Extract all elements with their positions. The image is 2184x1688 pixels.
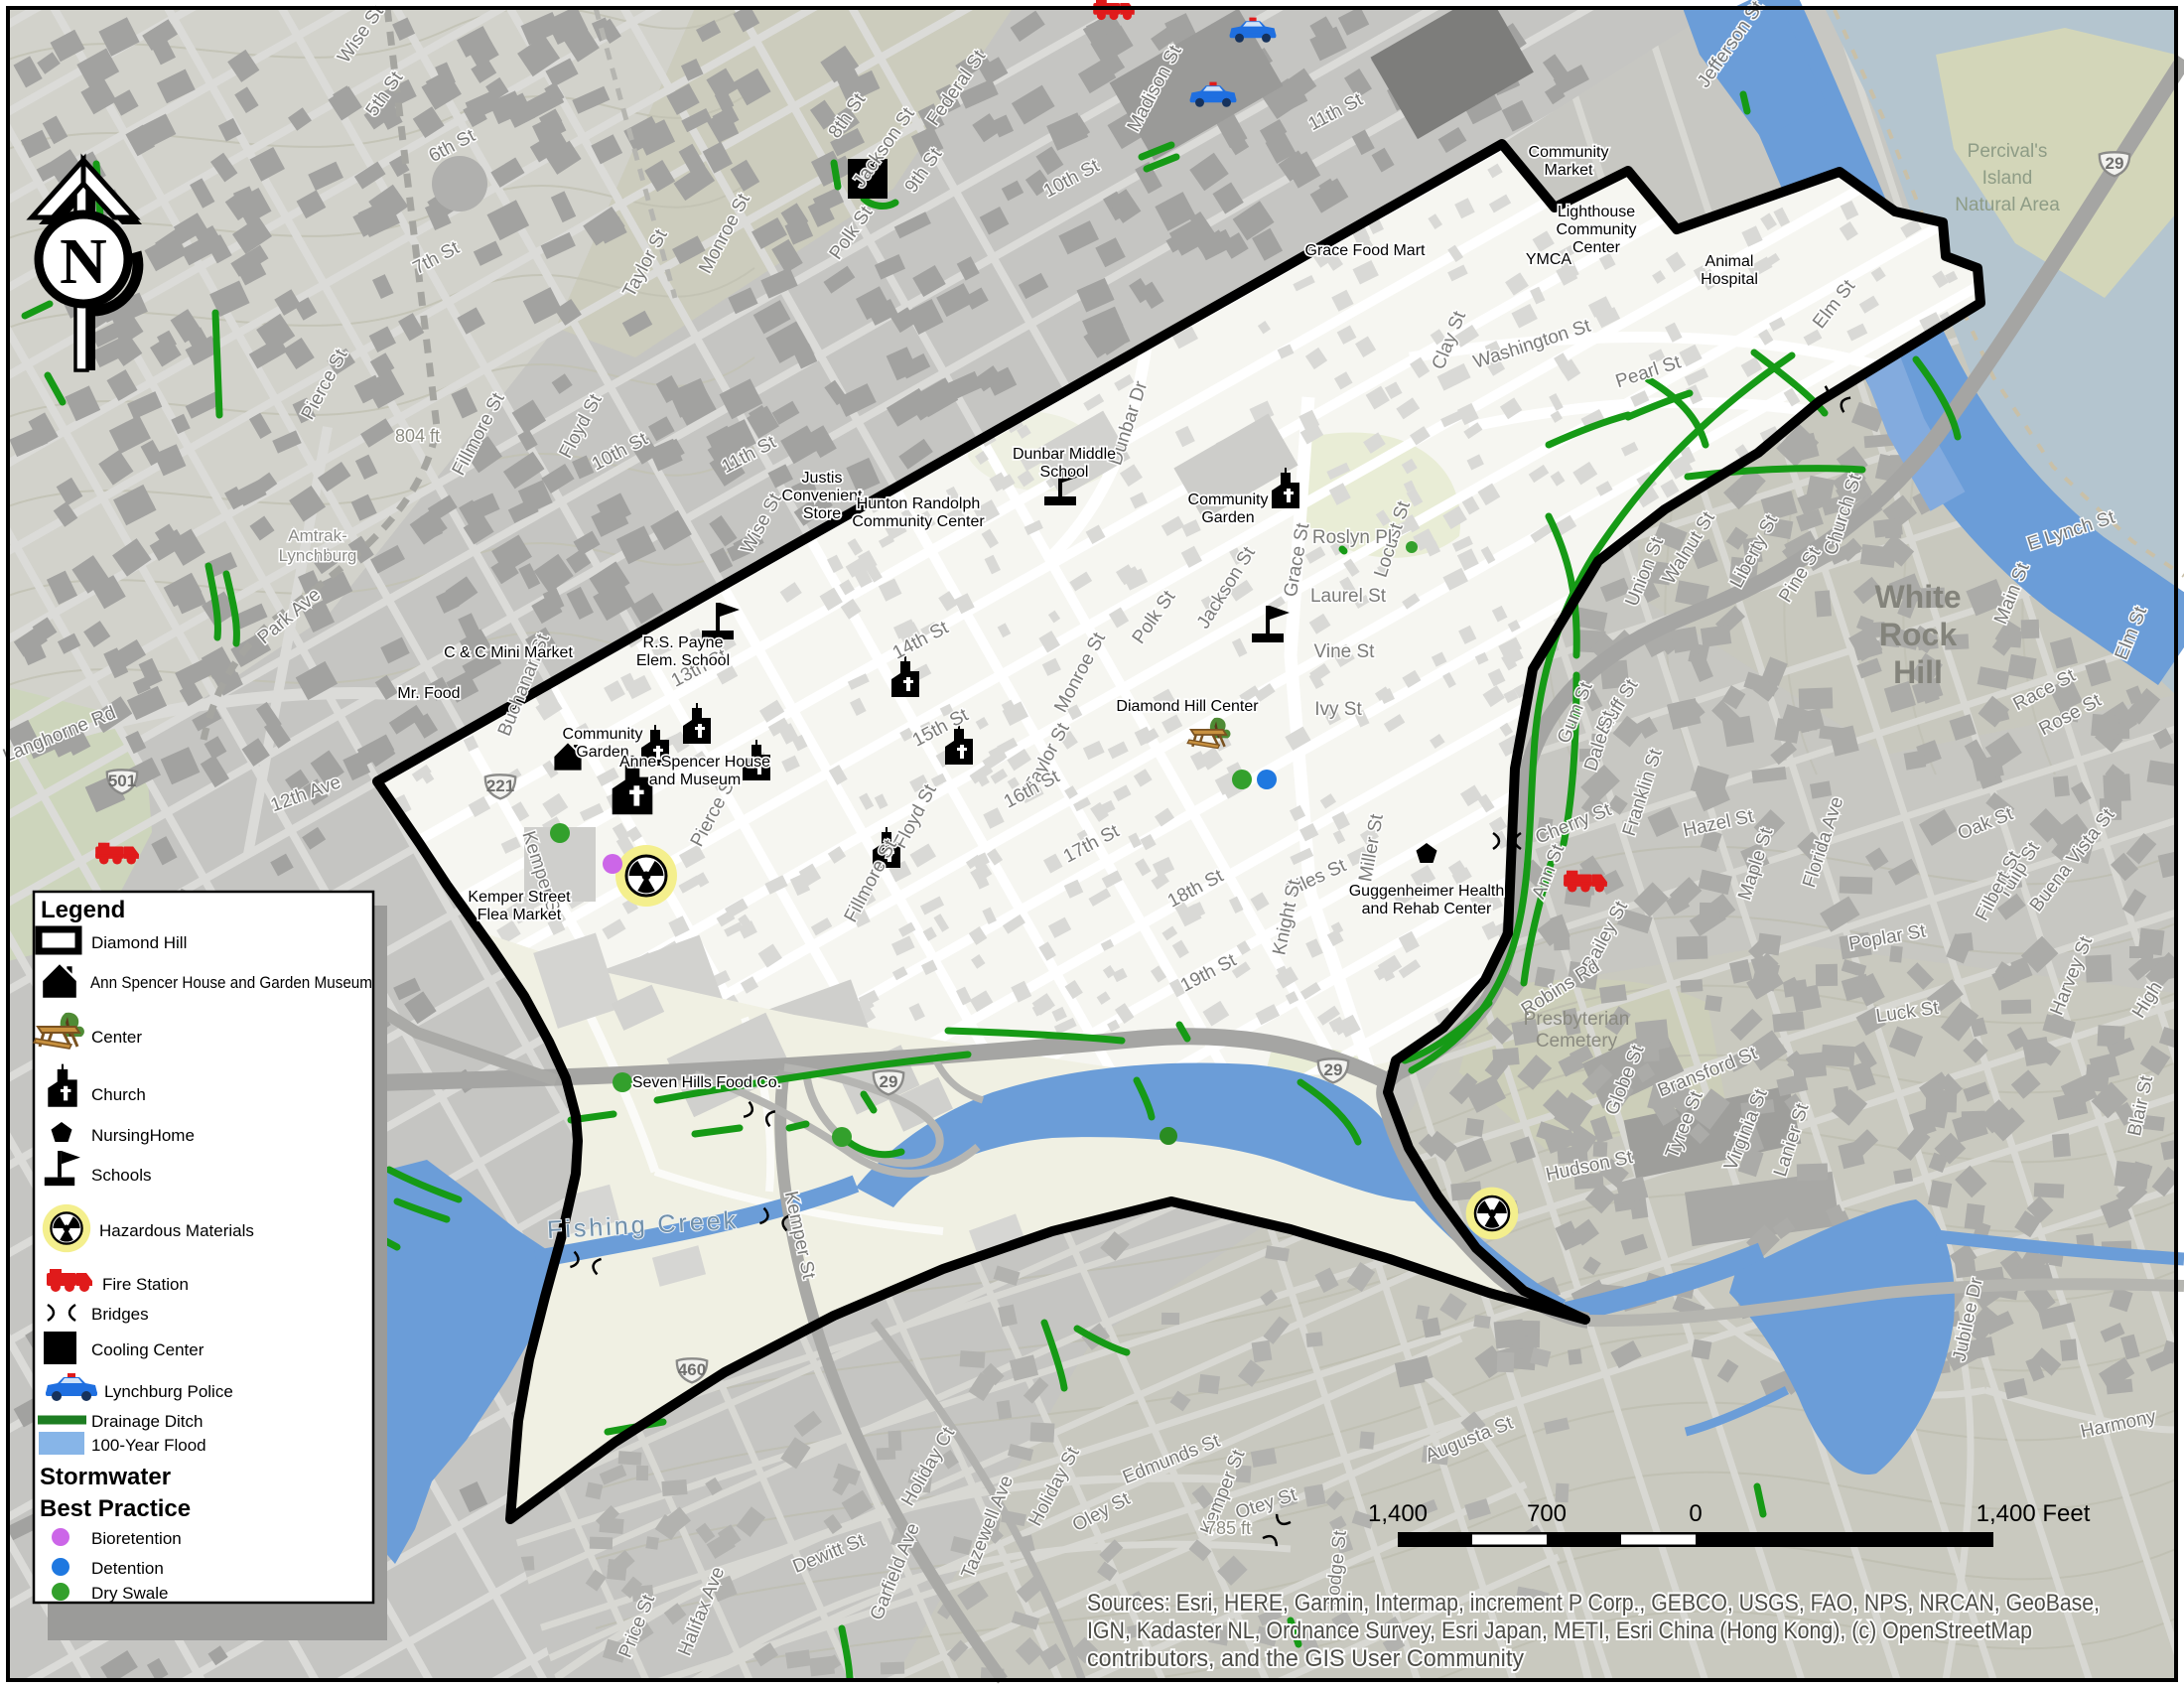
svg-text:Community Center: Community Center — [852, 513, 985, 530]
svg-text:Community: Community — [563, 726, 643, 743]
svg-text:Grace Food Mart: Grace Food Mart — [1305, 242, 1426, 259]
svg-text:Lynchburg Police: Lynchburg Police — [104, 1382, 233, 1401]
svg-text:Hunton Randolph: Hunton Randolph — [857, 495, 981, 512]
svg-text:Dry Swale: Dry Swale — [91, 1584, 168, 1603]
svg-text:Lighthouse: Lighthouse — [1558, 204, 1635, 220]
svg-text:Mr. Food: Mr. Food — [397, 685, 460, 702]
svg-text:Fire Station: Fire Station — [102, 1275, 189, 1294]
svg-text:Lynchburg: Lynchburg — [279, 546, 357, 565]
svg-text:Justis: Justis — [802, 470, 843, 487]
svg-text:Vine St: Vine St — [1314, 641, 1376, 662]
svg-text:Rock: Rock — [1879, 617, 1957, 652]
svg-text:1,400 Feet: 1,400 Feet — [1977, 1500, 2091, 1527]
svg-text:Anne Spencer House: Anne Spencer House — [619, 754, 770, 771]
svg-text:Percival's: Percival's — [1968, 141, 2048, 162]
svg-text:29: 29 — [1324, 1060, 1343, 1079]
svg-text:C & C Mini Market: C & C Mini Market — [444, 644, 573, 661]
svg-text:Hill: Hill — [1893, 654, 1943, 690]
svg-text:Seven Hills Food Co.: Seven Hills Food Co. — [632, 1074, 781, 1091]
svg-text:N: N — [60, 225, 107, 298]
svg-text:Garden: Garden — [1201, 509, 1254, 526]
svg-text:Island: Island — [1982, 168, 2033, 189]
svg-text:Flea Market: Flea Market — [478, 907, 562, 923]
svg-text:Bridges: Bridges — [91, 1305, 149, 1324]
svg-text:and Rehab Center: and Rehab Center — [1362, 901, 1492, 917]
svg-text:and Museum: and Museum — [649, 772, 742, 788]
svg-text:Laurel St: Laurel St — [1310, 586, 1387, 607]
svg-text:Diamond Hill Center: Diamond Hill Center — [1116, 698, 1259, 715]
svg-text:Kemper Street: Kemper Street — [468, 889, 571, 906]
svg-text:Community: Community — [1557, 221, 1637, 238]
svg-text:contributors, and the GIS User: contributors, and the GIS User Community — [1087, 1645, 1524, 1672]
svg-text:1,400: 1,400 — [1368, 1500, 1428, 1527]
svg-text:Stormwater: Stormwater — [40, 1464, 171, 1490]
svg-text:Community: Community — [1188, 492, 1269, 508]
svg-text:Roslyn Pl: Roslyn Pl — [1312, 527, 1392, 548]
svg-text:Schools: Schools — [91, 1166, 151, 1185]
svg-text:Cooling Center: Cooling Center — [91, 1340, 205, 1359]
svg-text:Community: Community — [1529, 144, 1609, 161]
svg-text:501: 501 — [108, 772, 136, 790]
svg-text:Cemetery: Cemetery — [1536, 1031, 1618, 1052]
svg-text:Animal: Animal — [1706, 253, 1754, 270]
svg-text:Dunbar Middle: Dunbar Middle — [1013, 446, 1116, 463]
svg-text:NursingHome: NursingHome — [91, 1126, 195, 1145]
svg-text:Elem. School: Elem. School — [636, 652, 730, 669]
svg-text:785 ft: 785 ft — [1206, 1518, 1251, 1538]
svg-text:29: 29 — [2106, 154, 2124, 173]
svg-text:YMCA: YMCA — [1526, 251, 1572, 268]
svg-text:Hazardous Materials: Hazardous Materials — [99, 1221, 254, 1240]
svg-text:Diamond Hill: Diamond Hill — [91, 933, 187, 952]
svg-text:Detention: Detention — [91, 1559, 164, 1578]
svg-text:Presbyterian: Presbyterian — [1524, 1009, 1630, 1030]
svg-text:Sources: Esri, HERE, Garmin, I: Sources: Esri, HERE, Garmin, Intermap, i… — [1087, 1590, 2100, 1617]
svg-text:Ann Spencer House and Garden M: Ann Spencer House and Garden Museum — [90, 973, 372, 992]
svg-text:Hospital: Hospital — [1701, 271, 1758, 288]
svg-text:100-Year Flood: 100-Year Flood — [91, 1436, 206, 1455]
svg-text:Guggenheimer Health: Guggenheimer Health — [1349, 883, 1505, 900]
svg-text:Drainage Ditch: Drainage Ditch — [91, 1412, 203, 1431]
svg-text:Amtrak-: Amtrak- — [288, 526, 347, 545]
svg-text:R.S. Payne: R.S. Payne — [643, 634, 724, 651]
svg-text:29: 29 — [880, 1072, 898, 1091]
svg-text:White: White — [1874, 579, 1961, 615]
svg-text:Best Practice: Best Practice — [40, 1495, 191, 1522]
svg-text:804 ft: 804 ft — [395, 426, 440, 446]
svg-text:Legend: Legend — [41, 897, 125, 923]
svg-text:Convenient: Convenient — [782, 488, 864, 504]
svg-text:Church: Church — [91, 1085, 146, 1104]
svg-text:Bioretention: Bioretention — [91, 1529, 182, 1548]
svg-text:Center: Center — [1572, 239, 1621, 256]
svg-text:Store: Store — [803, 505, 841, 522]
svg-text:IGN, Kadaster NL, Ordnance Sur: IGN, Kadaster NL, Ordnance Survey, Esri … — [1087, 1618, 2032, 1644]
svg-text:Natural Area: Natural Area — [1955, 195, 2060, 215]
svg-text:0: 0 — [1689, 1500, 1702, 1527]
svg-text:700: 700 — [1527, 1500, 1567, 1527]
svg-text:460: 460 — [678, 1360, 706, 1379]
svg-text:Market: Market — [1545, 162, 1593, 179]
svg-text:Ivy St: Ivy St — [1314, 699, 1362, 720]
svg-text:Center: Center — [91, 1028, 142, 1047]
svg-text:221: 221 — [486, 776, 514, 795]
svg-text:School: School — [1040, 464, 1089, 481]
